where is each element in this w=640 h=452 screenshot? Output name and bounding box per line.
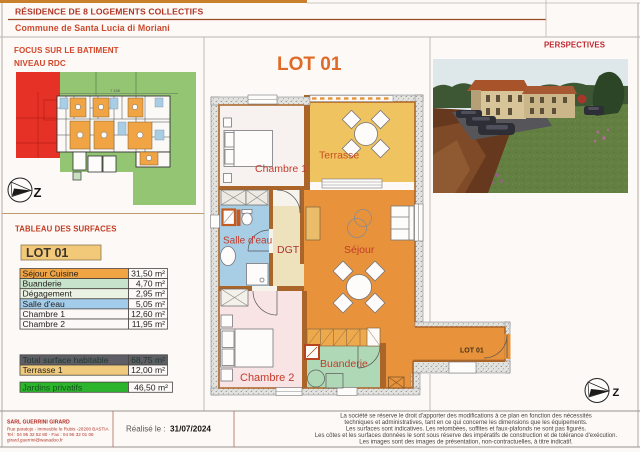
svg-text:Salle d'eau: Salle d'eau [223,236,272,247]
svg-text:LOT 01: LOT 01 [277,54,342,75]
svg-text:4,70 m²: 4,70 m² [136,279,165,289]
svg-text:Dégagement: Dégagement [23,289,73,299]
svg-text:Tel : 04 95 32 52 80 - Fax :: Tel : 04 95 32 52 80 - Fax : 04 95 32 01… [7,432,94,437]
svg-text:girard.guerrini@wanadoo.fr: girard.guerrini@wanadoo.fr [7,438,63,443]
svg-text:LOT 01: LOT 01 [460,348,484,355]
svg-text:La société se réserve le droit: La société se réserve le droit d'apporte… [340,414,592,420]
svg-text:Les surfaces sont indicatives.: Les surfaces sont indicatives. Les retom… [346,427,587,433]
svg-text:11,95 m²: 11,95 m² [132,319,165,329]
svg-text:Z: Z [34,185,42,200]
svg-text:Les côtes et les surfaces donn: Les côtes et les surfaces données le son… [315,433,618,439]
svg-text:Jardins privatifs: Jardins privatifs [23,382,83,392]
svg-text:Terrasse 1: Terrasse 1 [23,365,63,375]
svg-text:SARL GUERRINI GIRARD: SARL GUERRINI GIRARD [7,420,70,426]
svg-text:Réalisé le :: Réalisé le : [126,425,166,434]
svg-text:46,50 m²: 46,50 m² [134,382,168,392]
svg-text:Les images sont des images de: Les images sont des images de présentati… [359,440,573,446]
svg-text:31/07/2024: 31/07/2024 [170,425,211,434]
svg-text:FOCUS SUR LE BATIMENT: FOCUS SUR LE BATIMENT [14,46,119,55]
svg-text:Total surface habitable: Total surface habitable [23,355,109,365]
svg-text:LOT 01: LOT 01 [26,246,68,260]
svg-text:Chambre 2: Chambre 2 [240,372,294,384]
svg-text:TABLEAU DES SURFACES: TABLEAU DES SURFACES [15,225,117,234]
svg-text:12,00 m²: 12,00 m² [131,365,165,375]
svg-text:DGT: DGT [277,244,300,256]
svg-text:Buanderie: Buanderie [320,358,368,370]
svg-text:7 158: 7 158 [110,89,120,93]
svg-text:Z: Z [613,387,620,399]
svg-text:techniques et administratives,: techniques et administratives, tant en c… [344,420,587,426]
svg-text:Séjour: Séjour [344,244,375,256]
svg-text:68,75 m²: 68,75 m² [131,355,165,365]
svg-text:Buanderie: Buanderie [23,279,62,289]
svg-text:NIVEAU RDC: NIVEAU RDC [14,59,66,68]
svg-text:PERSPECTIVES: PERSPECTIVES [544,41,605,50]
svg-text:Terrasse: Terrasse [319,150,359,162]
svg-text:Salle d'eau: Salle d'eau [23,299,65,309]
svg-text:2,95 m²: 2,95 m² [136,289,165,299]
svg-text:Chambre 1: Chambre 1 [255,163,307,175]
svg-text:Séjour Cuisine: Séjour Cuisine [23,269,79,279]
svg-text:5,05 m²: 5,05 m² [136,299,165,309]
svg-text:31,50 m²: 31,50 m² [131,269,165,279]
svg-text:Chambre 2: Chambre 2 [23,319,66,329]
svg-text:Commune de Santa Lucia di Mori: Commune de Santa Lucia di Moriani [15,23,170,33]
svg-text:Rue paratojo - Immeuble le Rub: Rue paratojo - Immeuble le Rubis -20200 … [7,427,110,432]
svg-text:12,60 m²: 12,60 m² [131,309,165,319]
svg-text:Chambre 1: Chambre 1 [23,309,66,319]
svg-text:RÉSIDENCE DE 8 LOGEMENTS COLLE: RÉSIDENCE DE 8 LOGEMENTS COLLECTIFS [15,7,203,17]
